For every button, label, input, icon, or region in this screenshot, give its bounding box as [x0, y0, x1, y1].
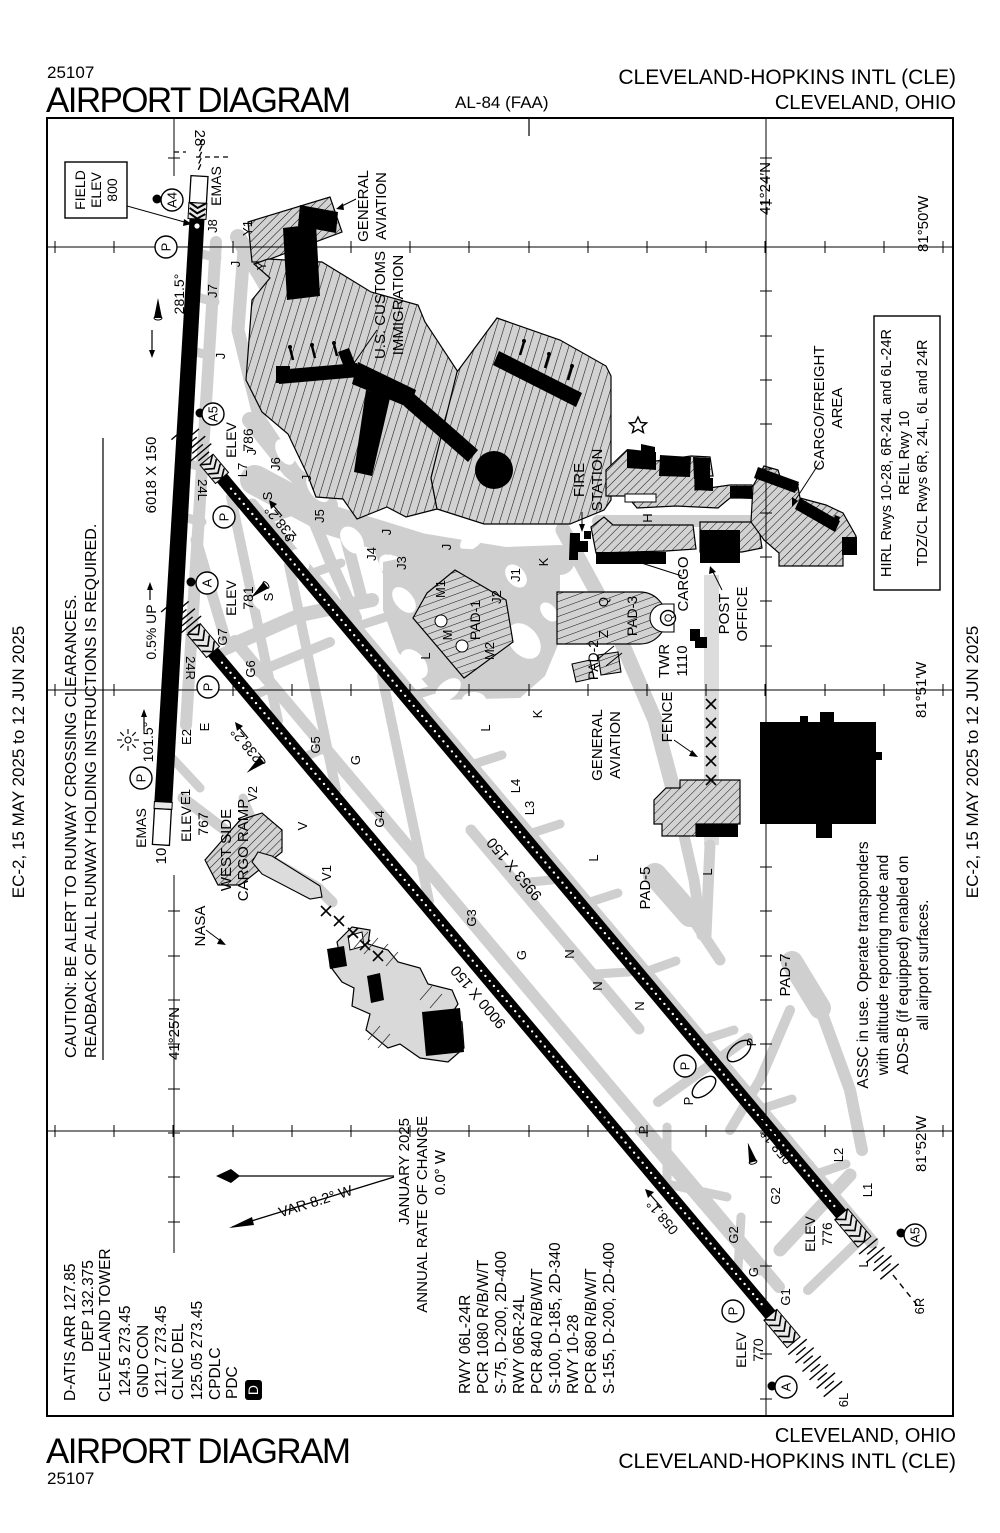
- svg-text:CLEVELAND-HOPKINS INTL (CLE): CLEVELAND-HOPKINS INTL (CLE): [618, 1450, 956, 1473]
- svg-text:1110: 1110: [674, 645, 691, 676]
- svg-text:770: 770: [750, 1338, 766, 1362]
- svg-text:6R: 6R: [912, 1298, 927, 1315]
- svg-text:G3: G3: [464, 909, 479, 926]
- svg-text:ANNUAL RATE OF CHANGE: ANNUAL RATE OF CHANGE: [414, 1116, 431, 1313]
- svg-text:G4: G4: [372, 810, 387, 827]
- svg-text:281.5°: 281.5°: [171, 274, 187, 315]
- svg-text:P: P: [636, 1126, 651, 1135]
- svg-text:ASSC in use. Operate transpond: ASSC in use. Operate transponders: [855, 841, 872, 1089]
- svg-text:STATION: STATION: [589, 449, 606, 512]
- svg-text:P: P: [681, 1097, 696, 1106]
- svg-text:81°52′W: 81°52′W: [913, 1115, 930, 1172]
- svg-text:all airport surfaces.: all airport surfaces.: [915, 900, 932, 1031]
- svg-text:G: G: [596, 1113, 611, 1123]
- svg-text:AVIATION: AVIATION: [607, 711, 624, 779]
- svg-text:PAD-7: PAD-7: [777, 953, 794, 996]
- svg-text:EMAS: EMAS: [133, 808, 149, 848]
- svg-text:41°24′N: 41°24′N: [757, 162, 774, 215]
- svg-text:L3: L3: [522, 801, 537, 815]
- svg-text:A: A: [200, 578, 215, 587]
- svg-text:JANUARY 2025: JANUARY 2025: [396, 1118, 413, 1225]
- svg-text:J8: J8: [205, 219, 220, 233]
- svg-text:FIRE: FIRE: [571, 463, 588, 497]
- svg-text:S-100, D-185, 2D-340: S-100, D-185, 2D-340: [547, 1242, 564, 1394]
- svg-text:81°51′W: 81°51′W: [913, 661, 930, 718]
- svg-text:ADS-B (if equipped) enabled on: ADS-B (if equipped) enabled on: [895, 856, 912, 1075]
- svg-text:125.05 273.45: 125.05 273.45: [189, 1301, 206, 1400]
- svg-text:GENERAL: GENERAL: [589, 709, 606, 781]
- svg-text:NASA: NASA: [192, 906, 209, 947]
- svg-text:0.5% UP: 0.5% UP: [143, 604, 159, 659]
- svg-text:P: P: [726, 1307, 741, 1316]
- svg-text:ELEV: ELEV: [223, 579, 239, 615]
- svg-text:POST: POST: [716, 594, 733, 635]
- svg-text:GND CON: GND CON: [135, 1325, 152, 1398]
- svg-text:121.7 273.45: 121.7 273.45: [153, 1305, 170, 1396]
- svg-text:CARGO/FREIGHT: CARGO/FREIGHT: [811, 345, 828, 470]
- svg-text:FIELD: FIELD: [72, 170, 88, 210]
- svg-text:RWY 06R-24L: RWY 06R-24L: [511, 1294, 528, 1394]
- svg-text:G6: G6: [243, 660, 258, 677]
- svg-text:AIRPORT DIAGRAM: AIRPORT DIAGRAM: [46, 81, 349, 120]
- svg-text:READBACK OF ALL RUNWAY HOLDING: READBACK OF ALL RUNWAY HOLDING INSTRUCTI…: [83, 524, 100, 1058]
- svg-text:781: 781: [240, 586, 256, 610]
- svg-text:J: J: [299, 475, 314, 482]
- svg-text:Y1: Y1: [240, 220, 255, 236]
- svg-text:J: J: [228, 261, 243, 268]
- svg-text:41°25′N: 41°25′N: [166, 1007, 183, 1060]
- svg-text:IMMIGRATION: IMMIGRATION: [390, 255, 407, 356]
- svg-text:FENCE: FENCE: [659, 692, 676, 743]
- svg-text:GENERAL: GENERAL: [355, 170, 372, 242]
- svg-text:AL-84 (FAA): AL-84 (FAA): [455, 93, 549, 112]
- svg-text:S-155, D-200, 2D-400: S-155, D-200, 2D-400: [601, 1242, 618, 1394]
- svg-text:E2: E2: [179, 729, 194, 745]
- svg-text:25107: 25107: [47, 1469, 94, 1488]
- svg-text:V1: V1: [319, 865, 334, 881]
- svg-text:L: L: [478, 724, 493, 731]
- svg-text:L4: L4: [508, 779, 523, 793]
- svg-text:M: M: [440, 630, 455, 641]
- svg-text:U.S. CUSTOMS: U.S. CUSTOMS: [372, 251, 389, 359]
- svg-text:A: A: [779, 1382, 794, 1391]
- svg-text:E1: E1: [178, 789, 193, 805]
- svg-text:J: J: [379, 529, 394, 536]
- svg-text:L7: L7: [235, 463, 250, 477]
- svg-text:A5: A5: [206, 406, 221, 422]
- svg-text:L: L: [700, 868, 715, 875]
- svg-text:TDZ/CL Rwys 6R, 24L, 6L and 24: TDZ/CL Rwys 6R, 24L, 6L and 24R: [915, 340, 931, 567]
- svg-text:L: L: [418, 652, 433, 659]
- svg-text:N: N: [562, 949, 577, 958]
- svg-text:G2: G2: [726, 1226, 741, 1243]
- svg-text:J: J: [244, 449, 259, 456]
- svg-text:H: H: [640, 513, 655, 522]
- svg-text:A4: A4: [165, 192, 180, 208]
- svg-text:6L: 6L: [836, 1393, 851, 1407]
- svg-text:EMAS: EMAS: [208, 166, 224, 206]
- svg-text:ELEV: ELEV: [223, 421, 239, 457]
- svg-text:S-75, D-200, 2D-400: S-75, D-200, 2D-400: [493, 1251, 510, 1394]
- svg-text:TWR: TWR: [656, 644, 673, 678]
- svg-text:124.5 273.45: 124.5 273.45: [117, 1305, 134, 1396]
- svg-text:A5: A5: [908, 1227, 923, 1243]
- svg-text:L: L: [856, 1260, 871, 1267]
- svg-text:CPDLC: CPDLC: [207, 1347, 224, 1400]
- svg-text:ELEV: ELEV: [88, 171, 104, 207]
- svg-text:P: P: [159, 243, 174, 252]
- svg-text:28: 28: [191, 130, 208, 147]
- svg-text:L1: L1: [860, 1183, 875, 1197]
- svg-text:D-ATIS ARR 127.85: D-ATIS ARR 127.85: [62, 1263, 79, 1401]
- svg-text:767: 767: [195, 812, 211, 836]
- svg-text:PAD-1: PAD-1: [467, 600, 483, 640]
- svg-text:RWY 10-28: RWY 10-28: [565, 1314, 582, 1394]
- svg-text:ELEV: ELEV: [802, 1215, 818, 1251]
- svg-text:G5: G5: [308, 736, 323, 753]
- svg-text:Q: Q: [663, 613, 675, 622]
- svg-text:81°50′W: 81°50′W: [915, 195, 932, 252]
- svg-text:DEP 132.375: DEP 132.375: [80, 1260, 97, 1352]
- svg-text:Y: Y: [254, 261, 269, 270]
- svg-text:PCR 840 R/B/W/T: PCR 840 R/B/W/T: [529, 1268, 546, 1394]
- svg-text:101.5°: 101.5°: [140, 722, 156, 763]
- svg-text:L: L: [586, 854, 601, 861]
- svg-text:V2: V2: [245, 786, 260, 802]
- svg-text:M1: M1: [433, 580, 448, 598]
- svg-text:J5: J5: [312, 509, 327, 523]
- svg-text:ELEV: ELEV: [178, 805, 194, 841]
- svg-text:HIRL Rwys 10-28, 6R-24L and 6L: HIRL Rwys 10-28, 6R-24L and 6L-24R: [879, 329, 895, 577]
- svg-text:ELEV: ELEV: [733, 1331, 749, 1367]
- svg-text:CLEVELAND TOWER: CLEVELAND TOWER: [97, 1248, 114, 1402]
- svg-text:WEST SIDE: WEST SIDE: [218, 809, 235, 891]
- svg-text:786: 786: [240, 428, 256, 452]
- svg-text:PCR 680 R/B/W/T: PCR 680 R/B/W/T: [583, 1268, 600, 1394]
- svg-text:800: 800: [104, 178, 120, 202]
- svg-text:AREA: AREA: [829, 388, 846, 429]
- svg-text:P: P: [744, 1038, 759, 1047]
- svg-text:RWY 06L-24R: RWY 06L-24R: [457, 1295, 474, 1394]
- svg-text:24L: 24L: [195, 479, 210, 501]
- svg-text:J: J: [439, 544, 454, 551]
- svg-text:PAD-3: PAD-3: [624, 596, 640, 636]
- svg-text:J1: J1: [508, 568, 523, 582]
- svg-text:PCR 1080 R/B/W/T: PCR 1080 R/B/W/T: [475, 1259, 492, 1394]
- svg-text:G: G: [348, 755, 363, 765]
- svg-text:AVIATION: AVIATION: [373, 172, 390, 240]
- svg-text:CARGO RAMP: CARGO RAMP: [235, 799, 252, 902]
- svg-text:P: P: [217, 513, 232, 522]
- svg-text:REIL Rwy 10: REIL Rwy 10: [897, 411, 913, 495]
- svg-text:Q: Q: [596, 597, 611, 607]
- svg-text:Z: Z: [596, 630, 611, 638]
- svg-text:CLNC DEL: CLNC DEL: [170, 1323, 187, 1400]
- svg-text:K: K: [530, 709, 545, 718]
- svg-text:CLEVELAND, OHIO: CLEVELAND, OHIO: [775, 92, 956, 114]
- svg-text:with altitude reporting mode a: with altitude reporting mode and: [875, 855, 892, 1077]
- svg-text:V: V: [295, 821, 310, 830]
- svg-text:J3: J3: [394, 556, 409, 570]
- svg-text:N: N: [590, 981, 605, 990]
- svg-text:P: P: [201, 683, 216, 692]
- svg-text:P: P: [134, 774, 149, 783]
- svg-text:J4: J4: [364, 547, 379, 561]
- svg-text:G: G: [514, 950, 529, 960]
- svg-text:S: S: [282, 533, 297, 542]
- svg-text:M2: M2: [482, 642, 497, 660]
- svg-text:10: 10: [153, 848, 170, 865]
- svg-text:G1: G1: [778, 1288, 793, 1305]
- svg-text:S: S: [260, 491, 275, 500]
- svg-text:J7: J7: [205, 284, 220, 298]
- svg-text:EC-2, 15 MAY 2025 to 12 JUN: EC-2, 15 MAY 2025 to 12 JUN 2025: [9, 626, 28, 898]
- svg-text:K: K: [536, 557, 551, 566]
- svg-text:AIRPORT DIAGRAM: AIRPORT DIAGRAM: [46, 1432, 349, 1471]
- svg-text:G2: G2: [768, 1187, 783, 1204]
- svg-text:PAD-2: PAD-2: [585, 640, 601, 680]
- svg-text:OFFICE: OFFICE: [734, 587, 751, 642]
- svg-text:P: P: [678, 1062, 693, 1071]
- svg-text:G: G: [746, 1267, 761, 1277]
- svg-text:S: S: [261, 592, 276, 601]
- svg-text:J6: J6: [268, 457, 283, 471]
- svg-text:CLEVELAND, OHIO: CLEVELAND, OHIO: [775, 1425, 956, 1447]
- svg-text:PDC: PDC: [224, 1366, 241, 1399]
- svg-text:CARGO: CARGO: [675, 556, 692, 611]
- svg-text:CLEVELAND-HOPKINS INTL (CLE): CLEVELAND-HOPKINS INTL (CLE): [618, 66, 956, 89]
- svg-text:25107: 25107: [47, 63, 94, 82]
- svg-text:L2: L2: [831, 1148, 846, 1162]
- svg-text:J2: J2: [489, 590, 504, 604]
- svg-text:24R: 24R: [183, 656, 198, 680]
- svg-text:776: 776: [819, 1222, 835, 1246]
- svg-text:CAUTION: BE ALERT TO RUNWAY CR: CAUTION: BE ALERT TO RUNWAY CROSSING CLE…: [63, 594, 80, 1058]
- svg-text:G7: G7: [215, 628, 230, 645]
- svg-text:6018 X 150: 6018 X 150: [143, 437, 160, 514]
- svg-text:EC-2, 15 MAY 2025 to 12 JUN: EC-2, 15 MAY 2025 to 12 JUN 2025: [963, 626, 982, 898]
- svg-text:PAD-5: PAD-5: [637, 866, 654, 909]
- svg-text:0.0° W: 0.0° W: [432, 1149, 449, 1195]
- svg-text:J: J: [213, 353, 228, 360]
- svg-text:E: E: [197, 722, 212, 731]
- svg-text:D: D: [245, 1385, 261, 1395]
- svg-text:N: N: [632, 1001, 647, 1010]
